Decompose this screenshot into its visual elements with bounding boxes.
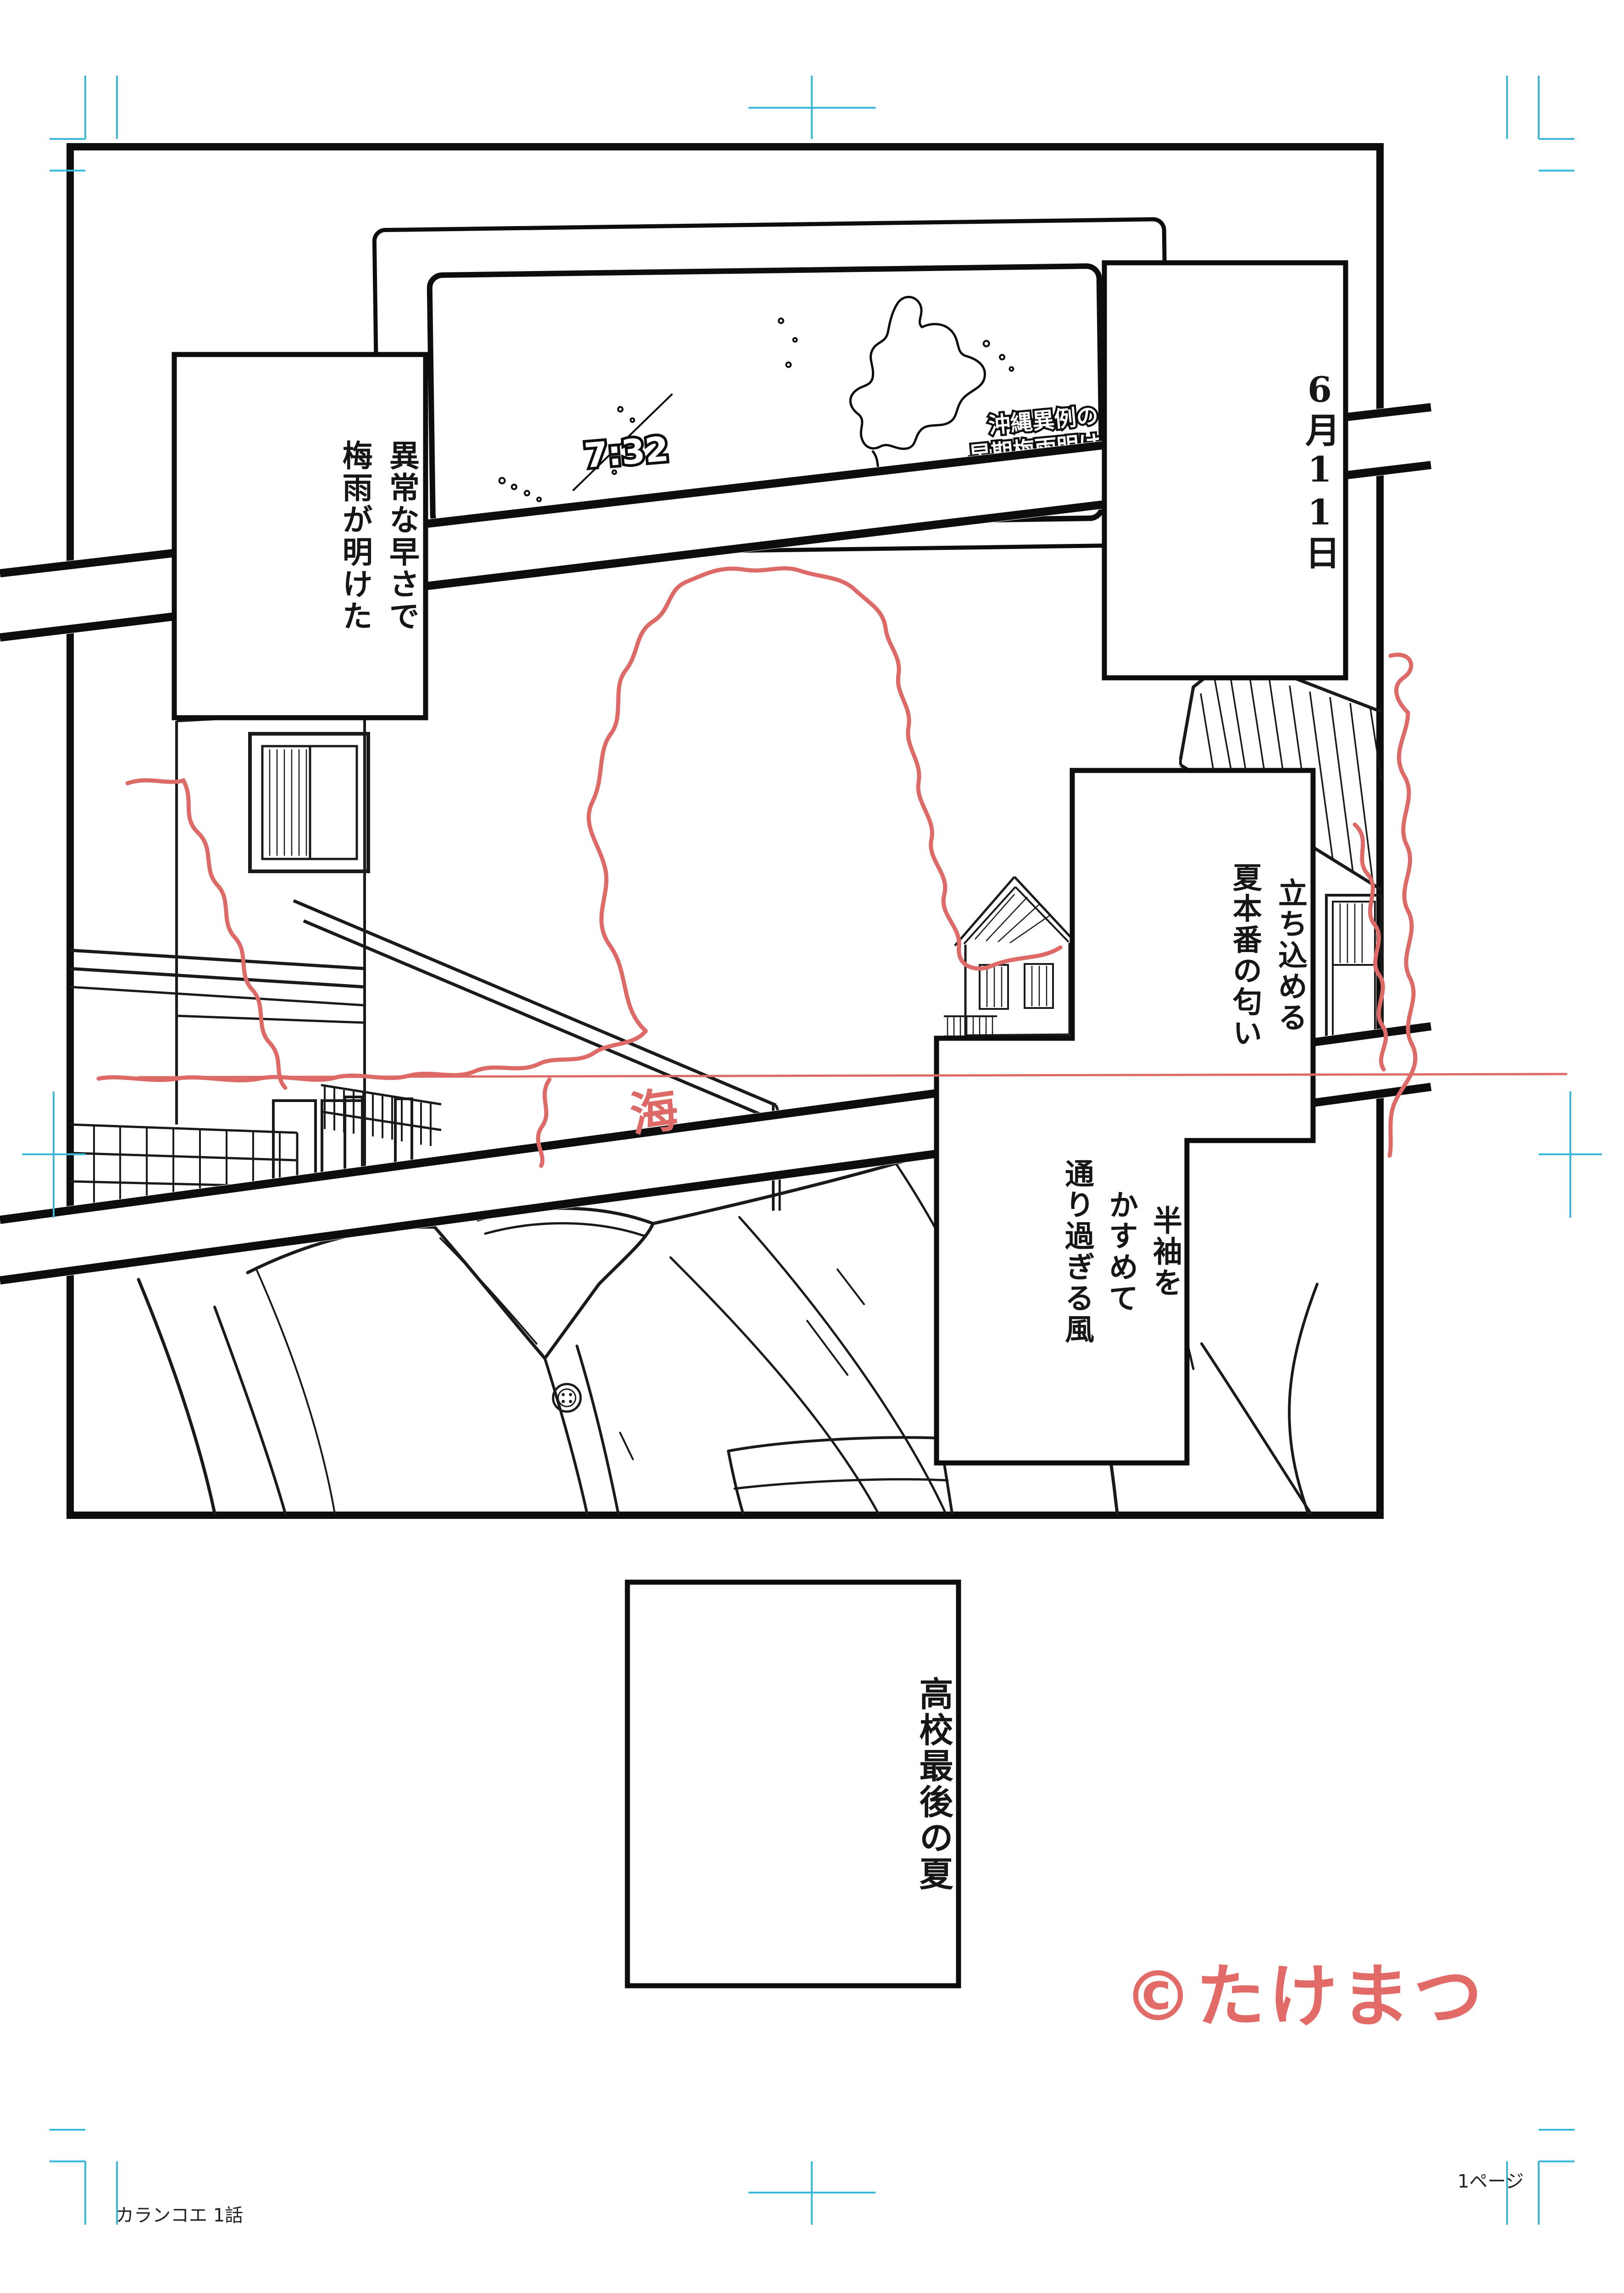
- caption-intro: 異常な早さで 梅雨が明けた: [174, 364, 503, 709]
- red-cloud-outline: [589, 568, 1060, 1031]
- caption-line: かすめて: [1099, 1050, 1143, 1454]
- caption-line: 高校最後の夏: [908, 1591, 959, 1977]
- caption-final: 高校最後の夏: [627, 1591, 1098, 1977]
- copyright-text: ©たけまつ: [1124, 1941, 1486, 2040]
- caption-line: 通り過ぎる風: [1055, 1050, 1099, 1454]
- footer-episode-label: カランコエ 1話: [116, 2200, 243, 2227]
- caption-line: 立ち込める: [1268, 780, 1313, 1131]
- tv-clock: 7:32: [583, 429, 671, 476]
- caption-line: 異常な早さで: [379, 364, 426, 709]
- footer-page-number: 1ページ: [1458, 2166, 1524, 2193]
- red-note-sea: 海: [626, 1081, 682, 1143]
- caption-date: 6月11日: [1104, 272, 1440, 669]
- caption-line: 梅雨が明けた: [332, 364, 378, 709]
- manga-page: 7:32 沖縄異例の 早期梅雨明け: [0, 0, 1624, 2293]
- red-cloud-tail: [99, 1031, 646, 1080]
- caption-line: 半袖を: [1143, 1050, 1187, 1454]
- caption-line: 6月11日: [1293, 272, 1346, 669]
- caption-wind: 半袖を かすめて 通り過ぎる風: [937, 1050, 1246, 1454]
